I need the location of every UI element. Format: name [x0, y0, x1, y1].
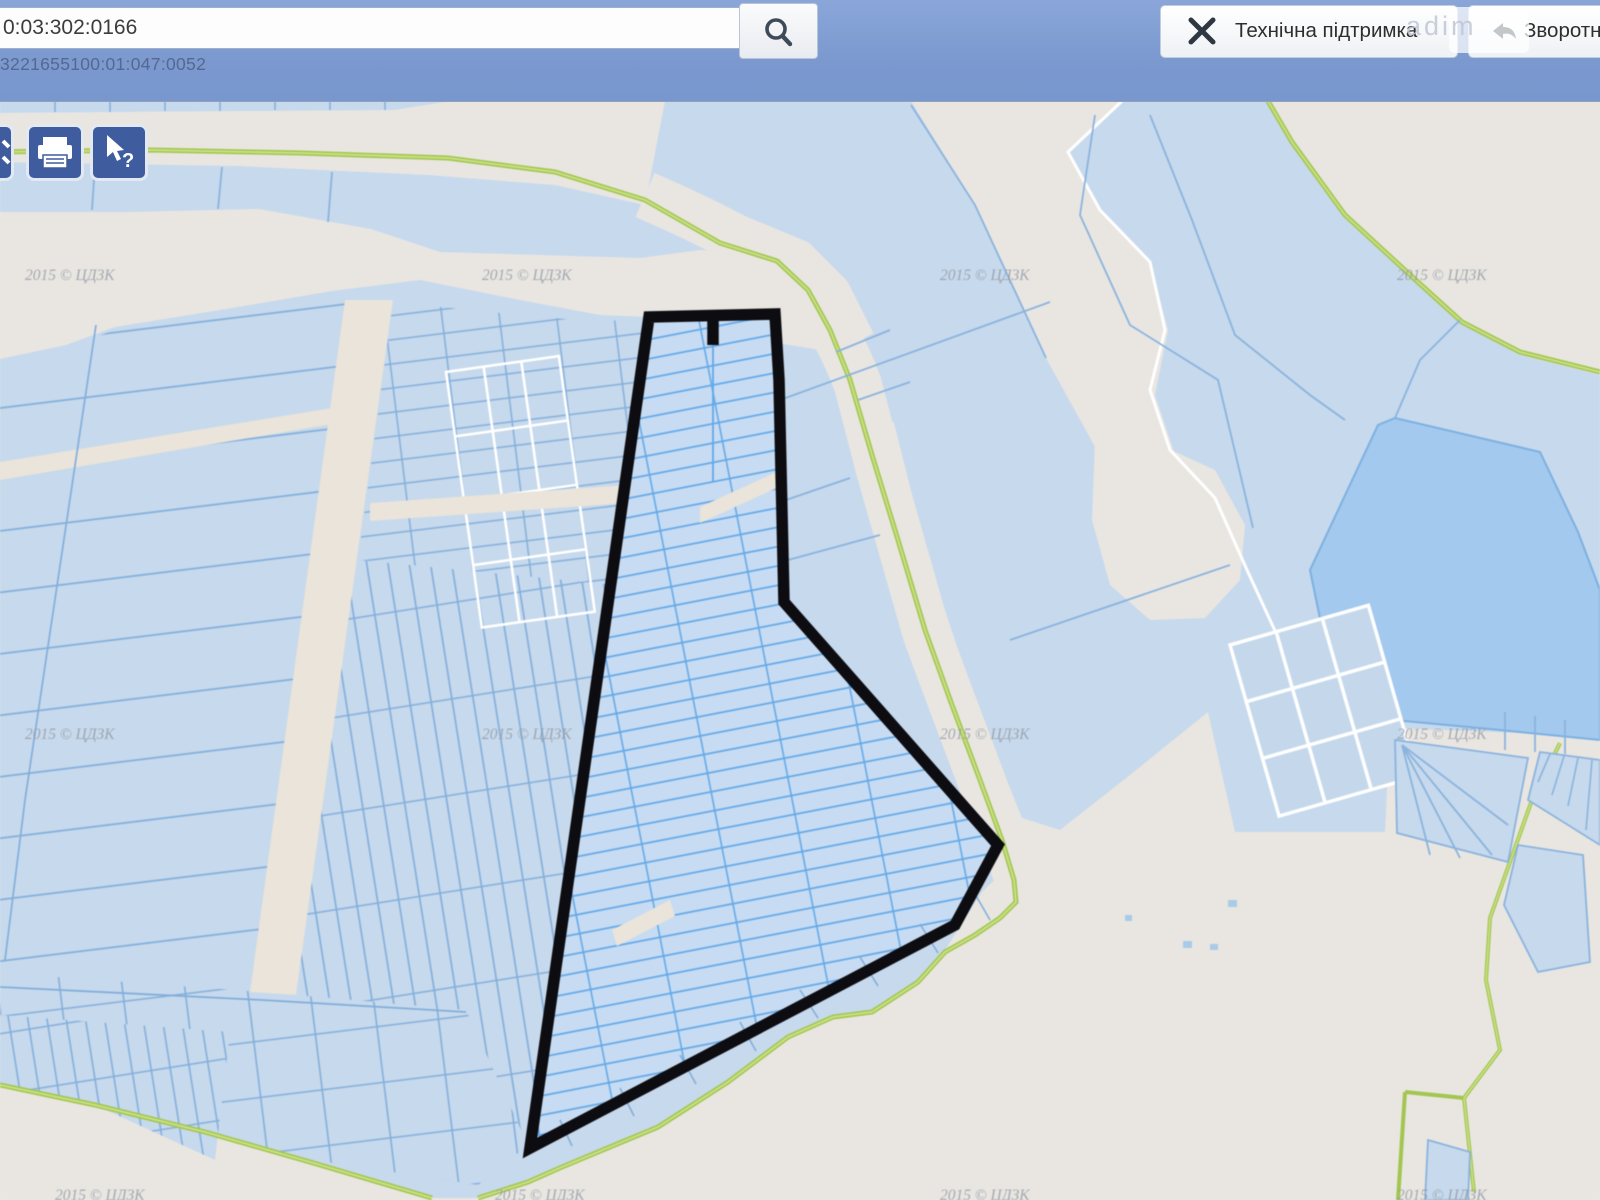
- svg-text:2015 © ЦДЗК: 2015 © ЦДЗК: [940, 267, 1030, 284]
- svg-text:2015 © ЦДЗК: 2015 © ЦДЗК: [482, 726, 572, 743]
- svg-text:2015 © ЦДЗК: 2015 © ЦДЗК: [55, 1187, 145, 1200]
- svg-text:2015 © ЦДЗК: 2015 © ЦДЗК: [495, 1187, 585, 1200]
- svg-text:2015 © ЦДЗК: 2015 © ЦДЗК: [25, 267, 115, 284]
- svg-text:2015 © ЦДЗК: 2015 © ЦДЗК: [1397, 726, 1487, 743]
- svg-text:2015 © ЦДЗК: 2015 © ЦДЗК: [940, 1187, 1030, 1200]
- svg-text:2015 © ЦДЗК: 2015 © ЦДЗК: [482, 267, 572, 284]
- svg-text:2015 © ЦДЗК: 2015 © ЦДЗК: [1397, 267, 1487, 284]
- svg-text:2015 © ЦДЗК: 2015 © ЦДЗК: [1397, 1187, 1487, 1200]
- svg-text:2015 © ЦДЗК: 2015 © ЦДЗК: [25, 726, 115, 743]
- svg-text:2015 © ЦДЗК: 2015 © ЦДЗК: [940, 726, 1030, 743]
- svg-text:?: ?: [122, 150, 134, 172]
